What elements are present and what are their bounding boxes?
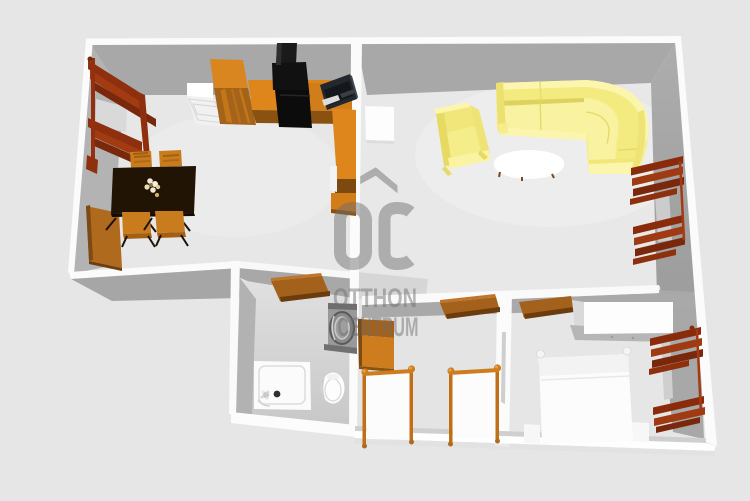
svg-text:OTTHON: OTTHON bbox=[333, 283, 417, 313]
svg-text:CENTRUM: CENTRUM bbox=[338, 312, 419, 342]
